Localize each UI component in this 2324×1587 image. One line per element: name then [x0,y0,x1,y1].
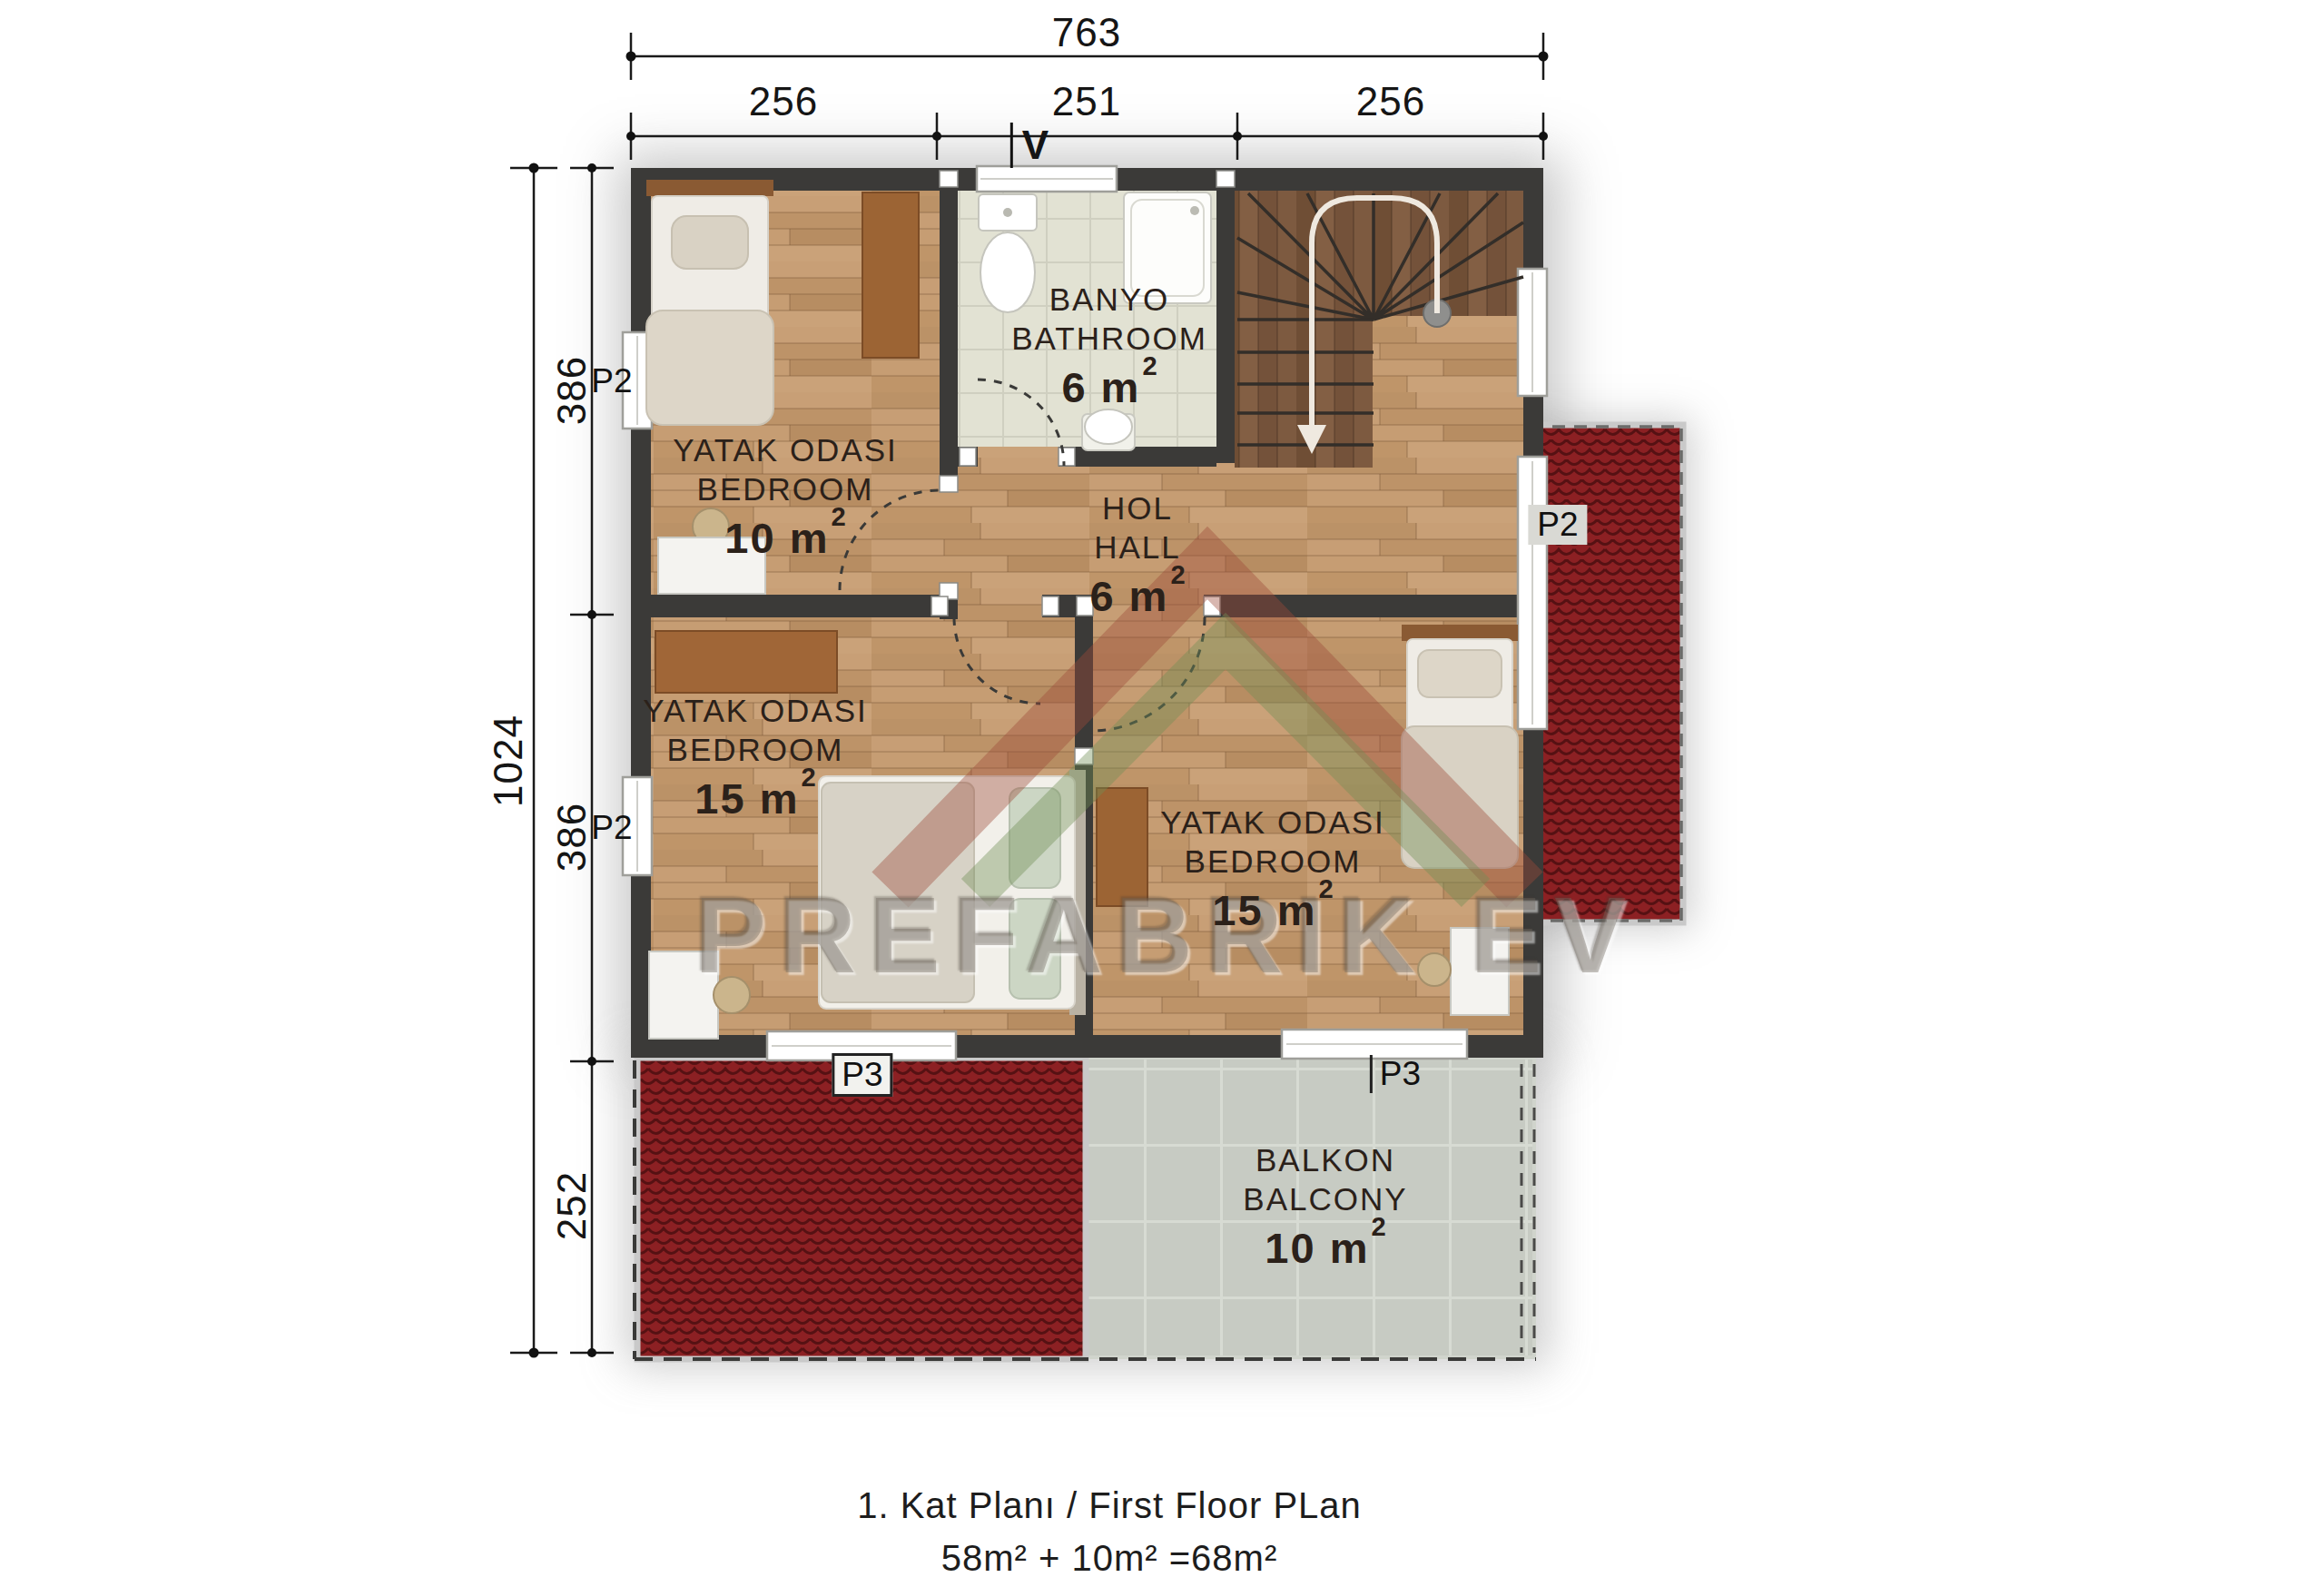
wall-hall-left [631,595,948,617]
room-area: 15 m2 [643,773,868,824]
room-label-bedroom-right: YATAK ODASI BEDROOM 15 m2 [1160,803,1385,937]
marker-p2-left-upper: P2 [591,362,632,400]
room-area: 15 m2 [1160,884,1385,936]
dim-left-segment-3: 252 [549,1171,595,1240]
window-bathroom-top [977,166,1117,192]
room-area: 6 m2 [1011,361,1207,413]
floor-stair-landing [1373,316,1525,468]
room-label-bedroom-top: YATAK ODASI BEDROOM 10 m2 [673,431,898,565]
dim-left-segment-1: 386 [549,356,595,425]
room-area: 10 m2 [673,512,898,564]
room-area: 6 m2 [1089,570,1185,622]
room-label-hall: HOL HALL 6 m2 [1089,489,1185,623]
room-name-en: BEDROOM [673,469,898,508]
room-label-bedroom-left: YATAK ODASI BEDROOM 15 m2 [643,692,868,825]
marker-p2-right: P2 [1528,505,1587,545]
sink [1082,409,1135,450]
dim-left-total: 1024 [486,715,531,807]
room-name-tr: HOL [1089,489,1185,528]
wall-bathroom-right [1216,191,1235,463]
room-name-tr: BALKON [1243,1141,1407,1180]
room-name-tr: YATAK ODASI [643,692,868,731]
wall-bathroom-bottom-right [1059,447,1216,467]
room-name-en: BATHROOM [1011,319,1207,358]
window-roof-right [1518,457,1547,729]
marker-vent: V [1010,123,1049,168]
wall-bathroom-left-upper [940,191,958,492]
plan-area-sum: 58m² + 10m² =68m² [941,1538,1277,1579]
room-label-balcony: BALKON BALCONY 10 m2 [1243,1141,1407,1275]
dresser-left-bedroom [655,631,837,693]
marker-p3-left: P3 [832,1053,892,1097]
floor-plan-canvas: PREFABRIK EV 763 256 251 256 1024 386 38… [0,0,2324,1587]
room-name-en: BEDROOM [1160,842,1385,881]
roof-right [1531,425,1683,922]
dim-top-segment-2: 251 [1052,79,1121,124]
dim-left-segment-2: 386 [549,803,595,872]
dim-top-segment-3: 256 [1356,79,1425,124]
marker-p2-left-lower: P2 [591,809,632,847]
marker-p3-right: P3 [1370,1055,1421,1093]
dim-top-segment-1: 256 [749,79,818,124]
floor-plan-drawing [0,0,2324,1587]
room-area: 10 m2 [1243,1222,1407,1274]
wardrobe [862,192,919,358]
room-name-tr: YATAK ODASI [673,431,898,470]
room-label-bathroom: BANYO BATHROOM 6 m2 [1011,281,1207,414]
dim-top-total: 763 [1052,10,1121,55]
plan-title: 1. Kat Planı / First Floor PLan [857,1485,1362,1526]
room-name-tr: YATAK ODASI [1160,803,1385,843]
single-bed-top [646,180,773,425]
room-name-en: BEDROOM [643,730,868,769]
room-name-tr: BANYO [1011,281,1207,320]
window-stair-right [1518,269,1547,396]
